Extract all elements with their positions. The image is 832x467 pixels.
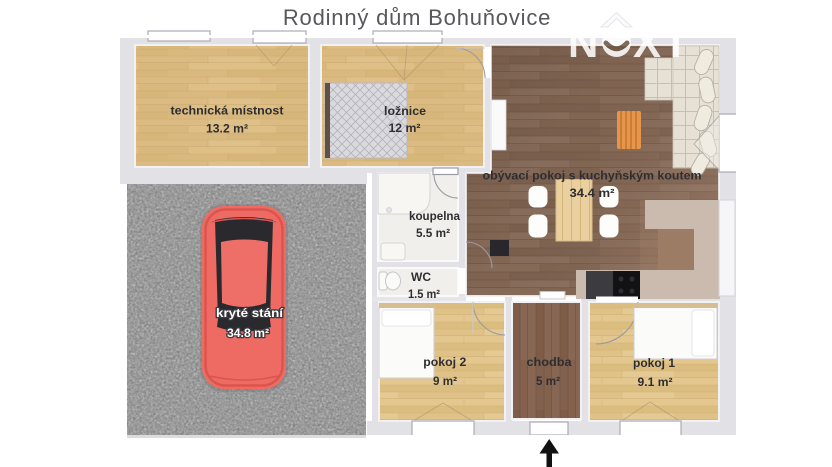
svg-text:13.2 m²: 13.2 m² <box>206 122 248 136</box>
svg-text:kryté stání: kryté stání <box>216 306 284 320</box>
svg-text:XT: XT <box>633 19 691 66</box>
svg-text:12 m²: 12 m² <box>389 121 421 135</box>
svg-text:Rodinný dům Bohuňovice: Rodinný dům Bohuňovice <box>283 5 551 30</box>
svg-text:5.5 m²: 5.5 m² <box>416 226 450 240</box>
svg-text:pokoj 1: pokoj 1 <box>633 356 675 370</box>
svg-text:34.4 m²: 34.4 m² <box>570 186 615 200</box>
svg-text:34.8 m²: 34.8 m² <box>227 326 269 340</box>
svg-text:9 m²: 9 m² <box>433 374 457 388</box>
svg-text:1.5 m²: 1.5 m² <box>408 287 440 301</box>
svg-text:chodba: chodba <box>527 355 572 369</box>
svg-text:ložnice: ložnice <box>384 104 426 118</box>
svg-text:technická místnost: technická místnost <box>171 103 284 117</box>
svg-text:N: N <box>568 19 600 66</box>
svg-text:pokoj 2: pokoj 2 <box>423 355 466 369</box>
svg-text:koupelna: koupelna <box>409 209 460 223</box>
svg-text:5 m²: 5 m² <box>536 374 560 388</box>
svg-text:obývací pokoj s kuchyňským kou: obývací pokoj s kuchyňským koutem <box>483 169 702 183</box>
svg-text:WC: WC <box>411 270 431 284</box>
svg-text:9.1 m²: 9.1 m² <box>638 375 673 389</box>
